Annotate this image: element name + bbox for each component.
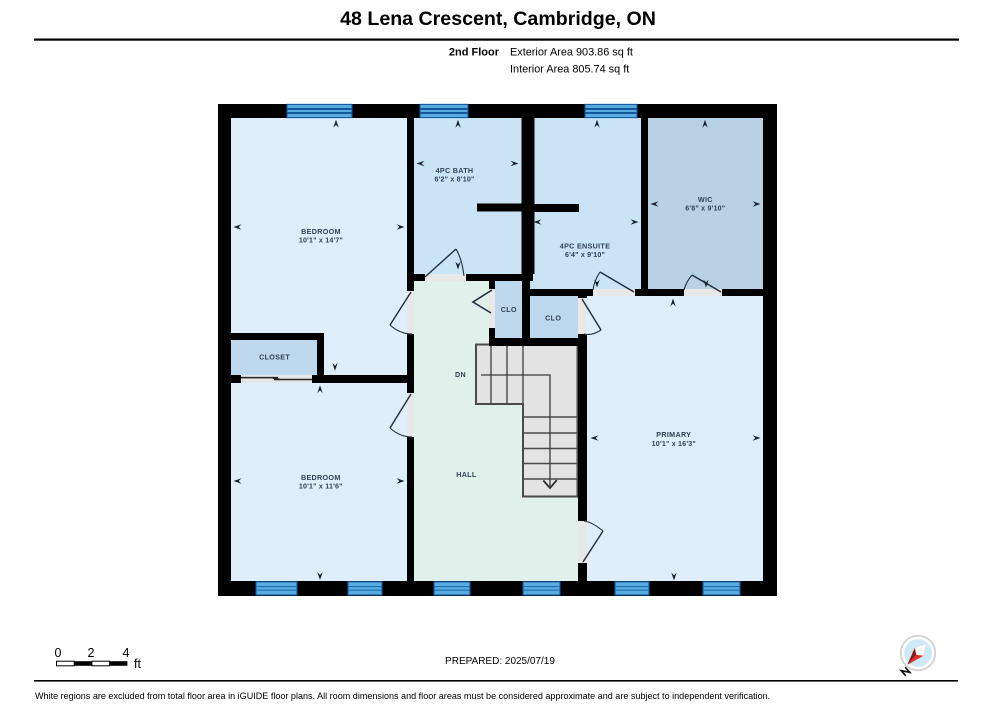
svg-text:6'8" x 9'10": 6'8" x 9'10" <box>685 205 725 213</box>
svg-text:ft: ft <box>134 657 141 671</box>
svg-text:Interior Area 805.74 sq ft: Interior Area 805.74 sq ft <box>510 64 629 76</box>
svg-text:6'4" x 9'10": 6'4" x 9'10" <box>565 251 605 259</box>
svg-text:CLO: CLO <box>545 314 561 323</box>
svg-text:CLO: CLO <box>501 305 517 314</box>
svg-text:Exterior Area 903.86 sq ft: Exterior Area 903.86 sq ft <box>510 47 633 59</box>
svg-text:4PC BATH: 4PC BATH <box>436 166 474 175</box>
svg-text:CLOSET: CLOSET <box>259 353 290 362</box>
svg-text:2: 2 <box>88 646 95 660</box>
svg-text:2nd Floor: 2nd Floor <box>449 47 500 59</box>
svg-text:10'1" x 14'7": 10'1" x 14'7" <box>299 237 343 245</box>
svg-text:4: 4 <box>123 646 130 660</box>
svg-text:10'1" x 16'3": 10'1" x 16'3" <box>652 440 696 448</box>
svg-text:BEDROOM: BEDROOM <box>301 473 341 482</box>
svg-text:White regions are excluded fro: White regions are excluded from total fl… <box>35 691 770 701</box>
svg-text:PRIMARY: PRIMARY <box>656 430 691 439</box>
svg-text:HALL: HALL <box>456 470 477 479</box>
svg-text:6'2" x 8'10": 6'2" x 8'10" <box>434 176 474 184</box>
svg-text:DN: DN <box>455 370 466 379</box>
svg-text:0: 0 <box>55 646 62 660</box>
svg-text:PREPARED: 2025/07/19: PREPARED: 2025/07/19 <box>445 656 555 667</box>
svg-text:WIC: WIC <box>698 195 713 204</box>
svg-text:BEDROOM: BEDROOM <box>301 227 341 236</box>
svg-text:10'1" x 11'6": 10'1" x 11'6" <box>299 483 343 491</box>
svg-text:48 Lena Crescent, Cambridge, O: 48 Lena Crescent, Cambridge, ON <box>340 8 656 30</box>
svg-text:4PC ENSUITE: 4PC ENSUITE <box>560 242 610 251</box>
